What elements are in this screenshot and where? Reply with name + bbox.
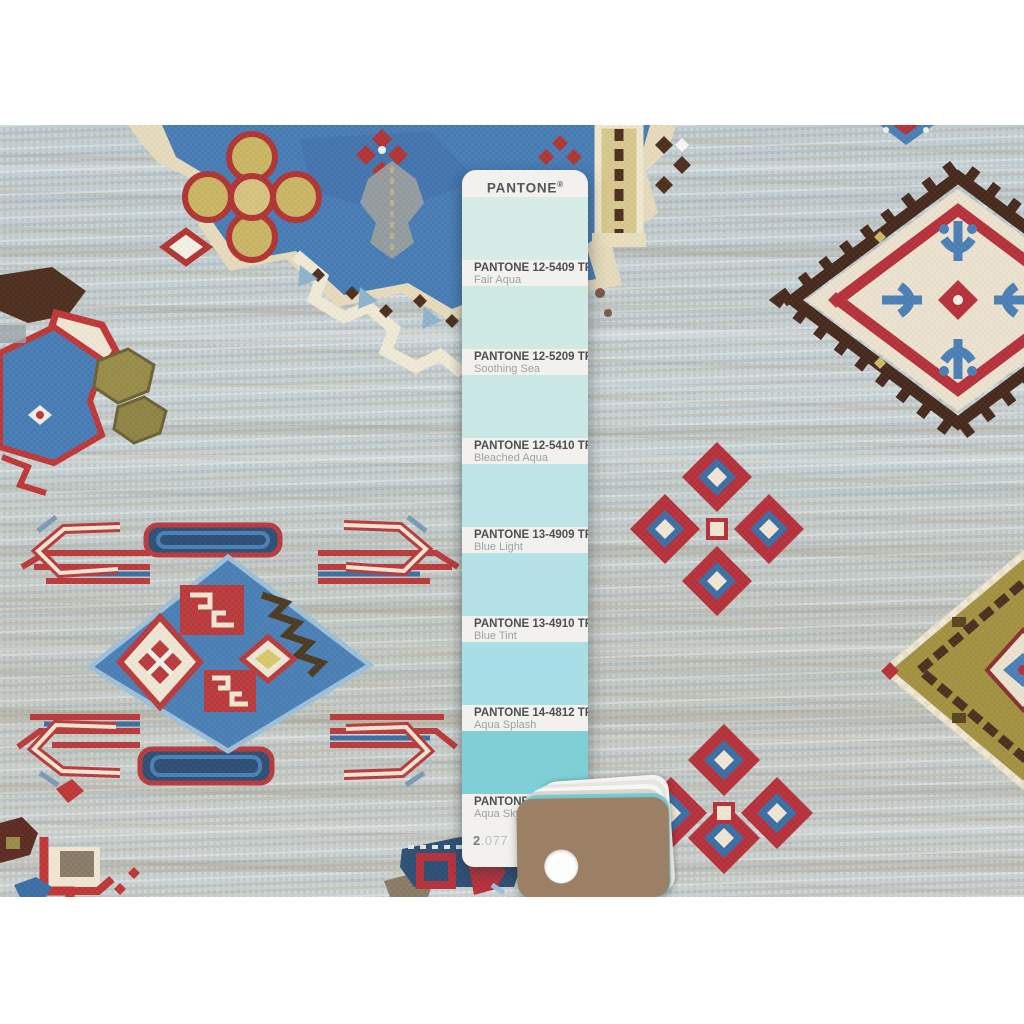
- pantone-swatch-code: PANTONE 12-5209 TPG: [474, 351, 584, 363]
- pantone-swatch-name: Blue Tint: [474, 630, 584, 642]
- pantone-swatch-list: PANTONE 12-5409 TPG Fair Aqua PANTONE 12…: [462, 197, 588, 820]
- pantone-swatch: PANTONE 12-5409 TPG Fair Aqua: [462, 197, 588, 286]
- fan-deck-rivet: [544, 849, 578, 883]
- color-fan-deck: [514, 778, 686, 897]
- pantone-swatch-label: PANTONE 12-5209 TPG Soothing Sea: [462, 349, 588, 375]
- rug-motif-bottom-left-fragment: [0, 779, 140, 897]
- pantone-swatch-label: PANTONE 12-5409 TPG Fair Aqua: [462, 260, 588, 286]
- pantone-page-code: 2.077: [473, 833, 508, 848]
- pantone-swatch: PANTONE 12-5410 TPG Bleached Aqua: [462, 375, 588, 464]
- pantone-swatch-code: PANTONE 12-5410 TPG: [474, 440, 584, 452]
- product-photo-stage: PANTONE® PANTONE 12-5409 TPG Fair Aqua P…: [0, 0, 1024, 1024]
- pantone-swatch-name: Fair Aqua: [474, 274, 584, 286]
- rug-motif-right-partial-medallion: [881, 555, 1024, 785]
- pantone-swatch-color: [462, 464, 588, 527]
- pantone-strip: PANTONE® PANTONE 12-5409 TPG Fair Aqua P…: [462, 170, 588, 867]
- pantone-swatch: PANTONE 13-4910 TPG Blue Tint: [462, 553, 588, 642]
- pantone-swatch: PANTONE 13-4909 TPG Blue Light: [462, 464, 588, 553]
- pantone-swatch-name: Blue Light: [474, 541, 584, 553]
- pantone-swatch-label: PANTONE 13-4910 TPG Blue Tint: [462, 616, 588, 642]
- pantone-brand: PANTONE®: [462, 170, 588, 197]
- pantone-swatch: PANTONE 14-4812 TPG Aqua Splash: [462, 642, 588, 731]
- pantone-swatch: PANTONE 12-5209 TPG Soothing Sea: [462, 286, 588, 375]
- pantone-swatch-label: PANTONE 13-4909 TPG Blue Light: [462, 527, 588, 553]
- pantone-swatch-name: Bleached Aqua: [474, 452, 584, 464]
- pantone-swatch-code: PANTONE 13-4909 TPG: [474, 529, 584, 541]
- pantone-swatch-code: PANTONE 14-4812 TPG: [474, 707, 584, 719]
- pantone-swatch-color: [462, 642, 588, 705]
- rug-motif-top-right-medallion: [782, 165, 1024, 435]
- pantone-swatch-color: [462, 375, 588, 438]
- rug-photo: PANTONE® PANTONE 12-5409 TPG Fair Aqua P…: [0, 125, 1024, 897]
- pantone-swatch-label: PANTONE 12-5410 TPG Bleached Aqua: [462, 438, 588, 464]
- rug-motif-top-fragment: [880, 125, 934, 145]
- pantone-swatch-code: PANTONE 13-4910 TPG: [474, 618, 584, 630]
- pantone-swatch-name: Aqua Splash: [474, 719, 584, 731]
- pantone-swatch-color: [462, 286, 588, 349]
- pantone-swatch-label: PANTONE 14-4812 TPG Aqua Splash: [462, 705, 588, 731]
- registered-trademark-symbol: ®: [557, 180, 563, 189]
- rug-motif-red-cross-1: [630, 442, 804, 616]
- fan-deck-top-card: [516, 797, 669, 897]
- pantone-swatch-code: PANTONE 12-5409 TPG: [474, 262, 584, 274]
- pantone-swatch-name: Soothing Sea: [474, 363, 584, 375]
- pantone-swatch-color: [462, 553, 588, 616]
- pantone-swatch-color: [462, 197, 588, 260]
